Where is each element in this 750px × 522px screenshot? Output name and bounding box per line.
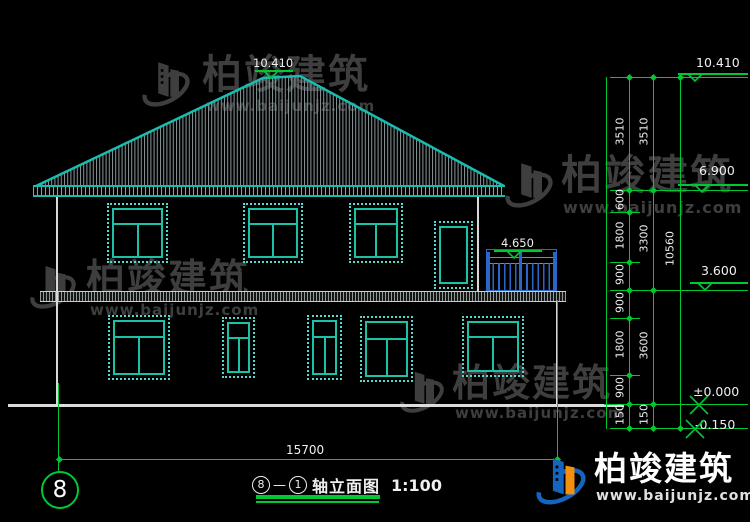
window-2f-1 bbox=[107, 203, 168, 263]
balcony-post bbox=[553, 252, 556, 290]
window-2f-3 bbox=[349, 203, 403, 263]
level-triangle-icon bbox=[697, 282, 713, 291]
door-2f bbox=[434, 221, 473, 289]
window-1f-4 bbox=[360, 316, 413, 382]
dim-label: 3510 bbox=[638, 110, 651, 154]
dim-line-col2 bbox=[653, 77, 654, 429]
window-1f-3 bbox=[307, 315, 342, 380]
axis-circle-to: 1 bbox=[289, 476, 307, 494]
watermark-url: www.baijunjz.com bbox=[596, 489, 750, 503]
dim-line-total bbox=[59, 459, 558, 460]
drawing-title: 8 — 1 轴立面图 1:100 bbox=[252, 473, 442, 497]
dim-label: 900 bbox=[614, 281, 627, 325]
level-triangle-icon bbox=[687, 73, 703, 82]
wall-left bbox=[56, 197, 58, 404]
title-dash: — bbox=[273, 478, 286, 493]
window-1f-5 bbox=[462, 316, 524, 377]
title-underline-thin bbox=[256, 501, 379, 503]
eave-band bbox=[33, 185, 505, 197]
extension-line-right bbox=[557, 300, 558, 462]
title-name: 轴立面图 bbox=[312, 473, 380, 497]
elevation-label-roof-peak: 10.410 bbox=[253, 56, 293, 70]
axis-bubble-8: 8 bbox=[41, 471, 79, 509]
elevation-label-balcony: 4.650 bbox=[501, 236, 534, 250]
ground-line bbox=[8, 404, 624, 407]
level-triangle-icon bbox=[506, 250, 522, 259]
dim-label: 3600 bbox=[638, 324, 651, 368]
level-bowtie-icon bbox=[688, 395, 710, 415]
dim-label-total-width: 15700 bbox=[286, 443, 324, 457]
title-underline-thick bbox=[256, 495, 380, 499]
balcony-post bbox=[487, 252, 490, 290]
elevation-line bbox=[678, 184, 748, 186]
elevation-label-eave: 6.900 bbox=[699, 163, 735, 178]
title-scale: 1:100 bbox=[391, 476, 442, 495]
axis-circle-from: 8 bbox=[252, 476, 270, 494]
dim-label: 3510 bbox=[614, 110, 627, 154]
brand-logo-color-icon bbox=[534, 452, 588, 508]
extension-line bbox=[606, 77, 607, 429]
window-1f-1 bbox=[108, 315, 170, 380]
watermark-brand: 柏竣建筑 bbox=[594, 452, 750, 485]
dim-label: 150 bbox=[614, 393, 627, 437]
watermark-brand-colored: 柏竣建筑 www.baijunjz.com bbox=[534, 452, 750, 503]
dim-label: 3300 bbox=[638, 217, 651, 261]
level-triangle-icon bbox=[263, 70, 279, 79]
elevation-label-floor2: 3.600 bbox=[701, 263, 737, 278]
dim-label: 150 bbox=[638, 393, 651, 437]
cad-canvas: 柏竣建筑 www.baijunjz.com 柏竣建筑 www.baijunjz.… bbox=[0, 0, 750, 522]
level-triangle-icon bbox=[694, 184, 710, 193]
window-1f-2 bbox=[222, 317, 255, 378]
dim-line-col3 bbox=[680, 77, 681, 429]
elevation-label-roof-peak-right: 10.410 bbox=[696, 55, 740, 70]
dim-label: 10560 bbox=[664, 227, 677, 271]
roof-hatch bbox=[36, 76, 504, 186]
dim-label: 1800 bbox=[614, 323, 627, 367]
level-bowtie-icon bbox=[684, 419, 706, 439]
wall-right-upper bbox=[477, 197, 479, 291]
dim-label: 1800 bbox=[614, 214, 627, 258]
window-2f-2 bbox=[243, 203, 303, 263]
floor-slab-band bbox=[40, 291, 566, 302]
